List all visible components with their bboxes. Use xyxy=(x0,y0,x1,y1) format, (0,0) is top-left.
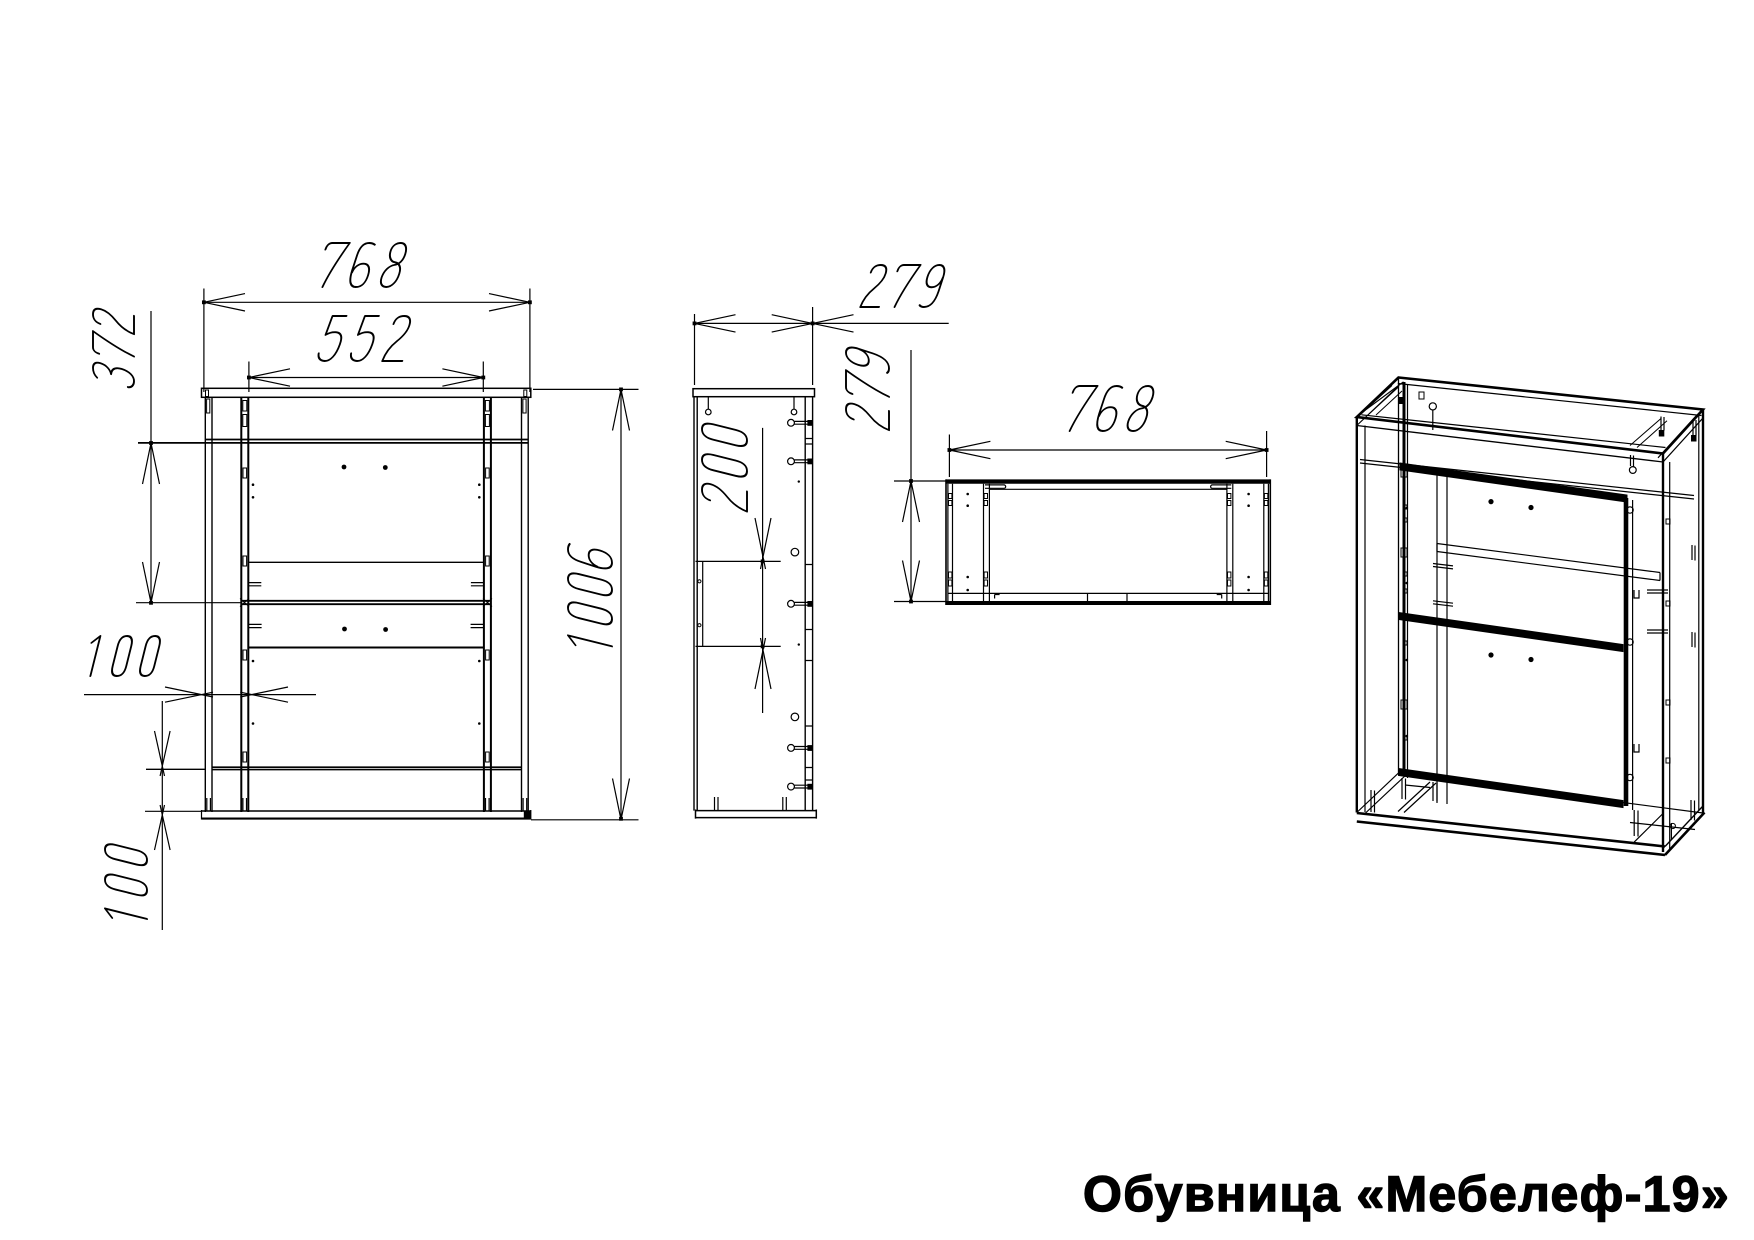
svg-text:Обувница «Мебелеф-19»: Обувница «Мебелеф-19» xyxy=(1083,1166,1730,1222)
